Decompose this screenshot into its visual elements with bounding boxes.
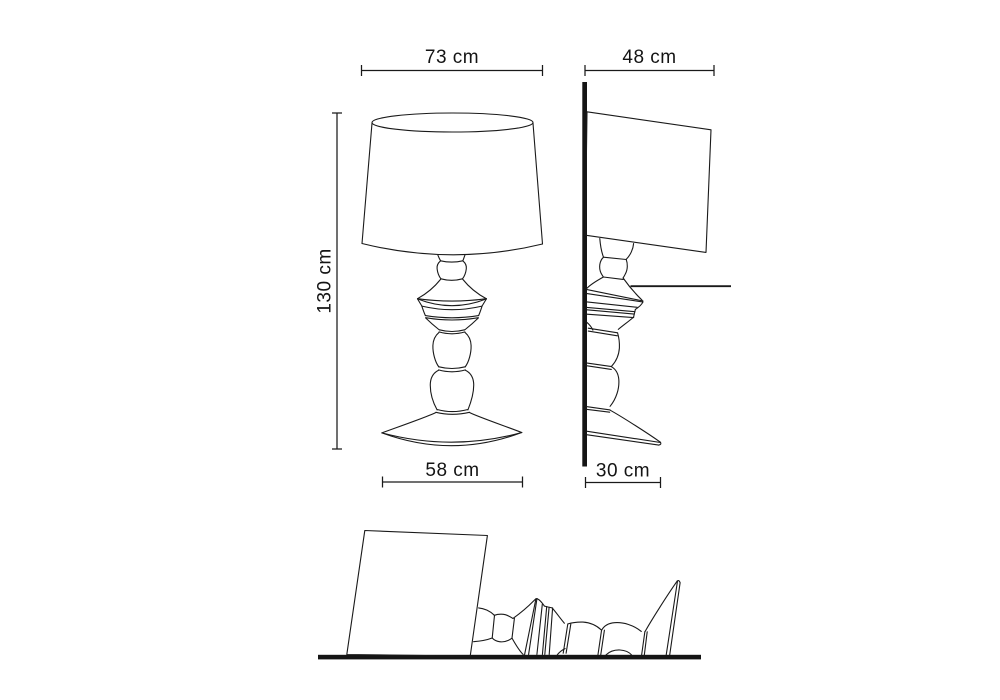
svg-text:48 cm: 48 cm xyxy=(622,47,676,68)
svg-text:30 cm: 30 cm xyxy=(596,461,650,482)
svg-text:58 cm: 58 cm xyxy=(425,460,479,481)
svg-text:130 cm: 130 cm xyxy=(315,248,336,313)
svg-text:73 cm: 73 cm xyxy=(425,47,479,68)
